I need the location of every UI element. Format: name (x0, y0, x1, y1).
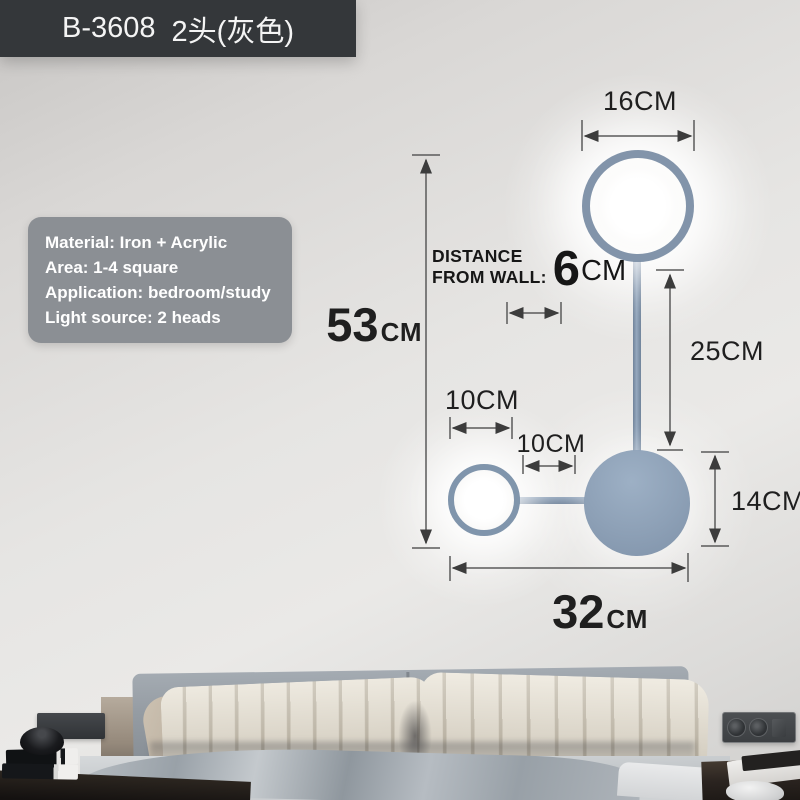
dim-unit: CM (721, 336, 764, 366)
lamp-arm (516, 497, 590, 504)
spec-info-box: Material: Iron + Acrylic Area: 1-4 squar… (28, 217, 292, 343)
dim-value: 14 (731, 486, 762, 516)
dim-circle-spacing: 10CM (503, 430, 599, 459)
dim-value: 10 (445, 385, 476, 415)
dim-unit: CM (381, 317, 422, 348)
product-image: 16CM 53CM DISTANCE FROM WALL: 6 CM 25CM … (0, 0, 800, 800)
dim-value: 6 (553, 250, 580, 288)
dim-value: 10 (517, 430, 546, 458)
dim-unit: CM (634, 86, 677, 116)
book (2, 763, 78, 779)
spec-material: Material: Iron + Acrylic (45, 230, 275, 255)
dim-unit: CM (606, 604, 647, 635)
model-number: B-3608 (62, 12, 156, 45)
power-socket (727, 718, 746, 737)
lamp-stem (633, 257, 641, 467)
lamp-base-disc (584, 450, 690, 556)
light-switch (772, 719, 786, 737)
spec-area: Area: 1-4 square (45, 255, 275, 280)
spec-application: Application: bedroom/study (45, 280, 275, 305)
dim-value: 53 (326, 297, 378, 352)
white-fabric (726, 781, 784, 800)
dim-value: 32 (552, 584, 604, 639)
spec-light-source: Light source: 2 heads (45, 305, 275, 330)
dim-small-circle-diameter: 10CM (432, 385, 532, 416)
dim-unit: CM (581, 255, 626, 288)
dim-unit: CM (476, 385, 519, 415)
dim-value: 16 (603, 86, 634, 116)
power-socket (749, 718, 768, 737)
distance-from-wall-label: DISTANCE FROM WALL: (432, 246, 547, 288)
wall-socket-panel (722, 712, 796, 743)
dim-stem-length: 25CM (690, 336, 764, 367)
dim-total-width: 32CM (545, 584, 655, 639)
dim-unit: CM (762, 486, 800, 516)
model-badge: B-3608 2头(灰色) (0, 0, 356, 57)
dim-bottom-circle-diameter: 14CM (731, 486, 800, 517)
dim-value: 25 (690, 336, 721, 366)
lamp-small-ring-light (448, 464, 520, 536)
model-variant: 2头(灰色) (172, 8, 294, 50)
dim-unit: CM (545, 430, 585, 458)
dim-distance-from-wall: DISTANCE FROM WALL: 6 CM (432, 246, 626, 288)
dim-total-height: 53CM (318, 297, 422, 352)
dim-top-circle-diameter: 16CM (585, 86, 695, 117)
black-bowl (20, 727, 64, 755)
